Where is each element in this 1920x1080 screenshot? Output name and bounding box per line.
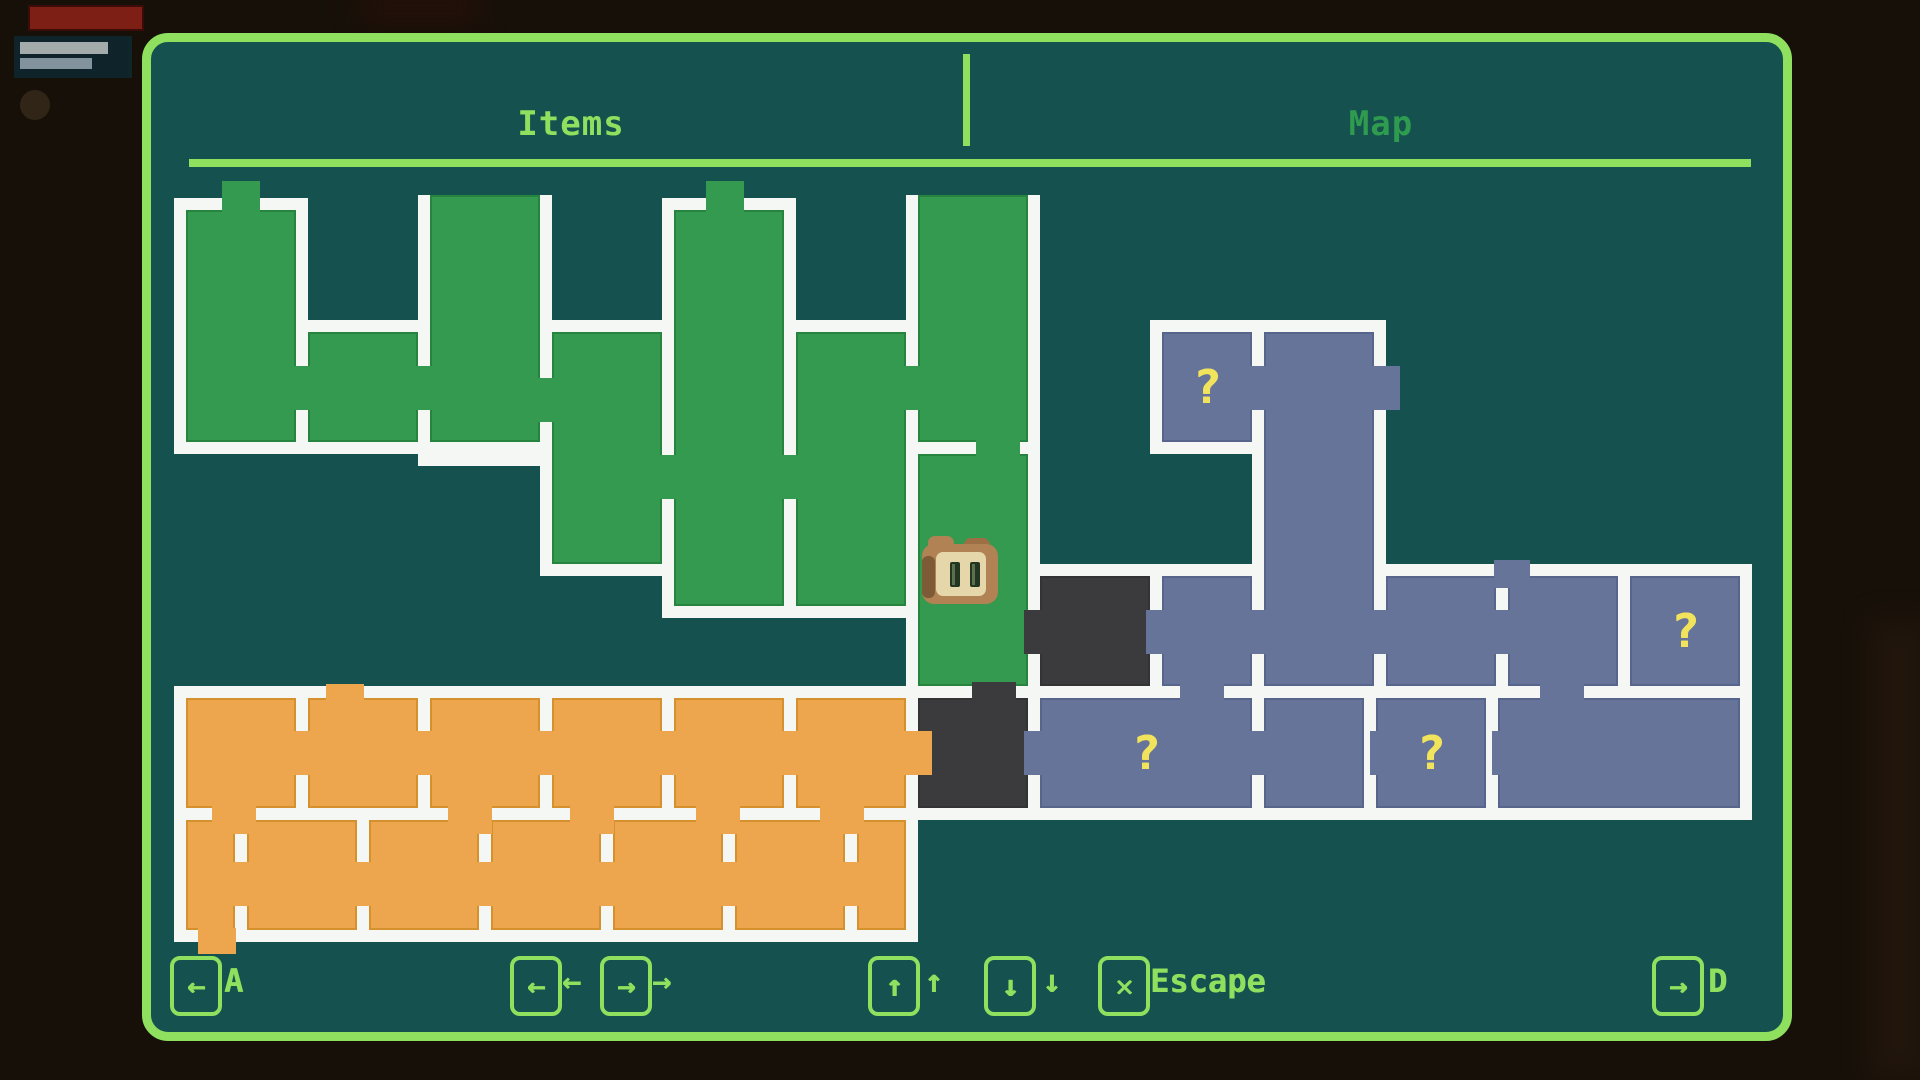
map-room (430, 698, 540, 808)
map-room (613, 820, 723, 930)
map-room (491, 820, 601, 930)
map-room (552, 698, 662, 808)
map-door (475, 862, 505, 906)
map-door (1370, 366, 1400, 410)
game-screen: Items Map ???? ←A←←→→↑↑↓↓✕Escape→D (0, 0, 1920, 1080)
map-door (414, 731, 444, 775)
unknown-room-marker: ? (1671, 604, 1699, 658)
map-room (430, 195, 540, 442)
map-door (1024, 610, 1054, 654)
map-room (186, 210, 296, 442)
key-d-button-icon: → (1652, 956, 1704, 1016)
bread-eye (950, 562, 960, 587)
map-door (1370, 731, 1400, 775)
map-door (597, 862, 627, 906)
map-door (658, 455, 688, 499)
map-door (1248, 610, 1278, 654)
map-door (658, 731, 688, 775)
bread-eye (970, 562, 980, 587)
unknown-room-marker: ? (1193, 360, 1221, 414)
key-escape-button-icon: ✕ (1098, 956, 1150, 1016)
map-door (231, 862, 261, 906)
map-room (1498, 698, 1740, 808)
map-room (1264, 698, 1364, 808)
map-door (536, 378, 566, 422)
map-room (1264, 332, 1374, 686)
map-door (1146, 610, 1176, 654)
key-down-label: ↓ (1042, 962, 1061, 1000)
map-door (448, 804, 492, 834)
map-door (696, 804, 740, 834)
key-a-label: A (224, 962, 243, 1000)
key-up-button-icon: ↑ (868, 956, 920, 1016)
key-left-label: ← (562, 962, 581, 1000)
key-up-label: ↑ (924, 962, 943, 1000)
map-door (1540, 682, 1584, 712)
map-room (796, 698, 906, 808)
map-door (414, 366, 444, 410)
map-door (976, 438, 1020, 468)
map-room (674, 210, 784, 606)
key-a-button-icon: ← (170, 956, 222, 1016)
map-door (1180, 682, 1224, 712)
map-room (796, 332, 906, 606)
player-bread-sprite (922, 536, 998, 604)
map-door (1492, 610, 1522, 654)
map-door (353, 862, 383, 906)
map-door (1248, 731, 1278, 775)
map-door (326, 684, 364, 712)
map-room (1040, 576, 1150, 686)
bread-crust-shadow (922, 556, 935, 598)
map-room (918, 195, 1028, 442)
map-door (292, 731, 322, 775)
map-door (780, 455, 810, 499)
key-escape-label: Escape (1150, 962, 1266, 1000)
key-down-button-icon: ↓ (984, 956, 1036, 1016)
map-door (570, 804, 614, 834)
map-door (1024, 731, 1054, 775)
map-room (1386, 576, 1496, 686)
key-left-button-icon: ← (510, 956, 562, 1016)
map-door (820, 804, 864, 834)
map-door (222, 181, 260, 214)
map-room (308, 332, 418, 442)
map-door (1248, 366, 1278, 410)
map-room (186, 820, 235, 930)
map-door (902, 731, 932, 775)
map-room (369, 820, 479, 930)
unknown-room-marker: ? (1417, 726, 1445, 780)
key-right-label: → (652, 962, 671, 1000)
map-room (186, 698, 296, 808)
unknown-room-marker: ? (1132, 726, 1160, 780)
map-door (292, 366, 322, 410)
key-d-label: D (1708, 962, 1727, 1000)
map-room (674, 698, 784, 808)
map-door (536, 731, 566, 775)
map-door (719, 862, 749, 906)
map-door (972, 682, 1016, 712)
map-room (1508, 576, 1618, 686)
map-door (902, 366, 932, 410)
map-door (1494, 560, 1530, 588)
map-door (841, 862, 871, 906)
map-room (247, 820, 357, 930)
map-door (780, 731, 810, 775)
map-room (735, 820, 845, 930)
map-door (1370, 610, 1400, 654)
key-right-button-icon: → (600, 956, 652, 1016)
map-room (918, 698, 1028, 808)
map-door (1492, 731, 1522, 775)
map-room (308, 698, 418, 808)
map-door (212, 804, 256, 834)
map-door (706, 181, 744, 214)
map-door (198, 928, 236, 954)
map-room (552, 332, 662, 564)
